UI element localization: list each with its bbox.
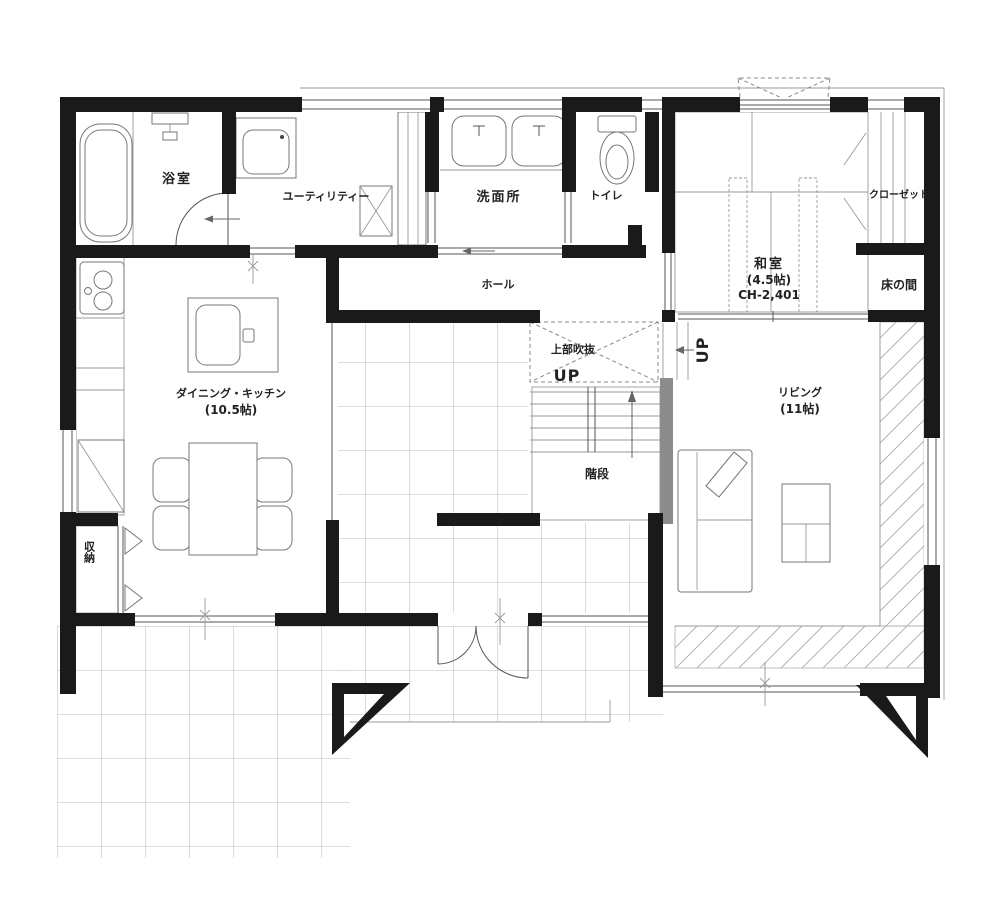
folding-door-icon [125, 585, 142, 611]
veranda-strip-bottom [675, 626, 924, 668]
tokonoma-label: 床の間 [881, 277, 917, 292]
storage-label: 収納 [83, 541, 96, 564]
chair-icon [254, 506, 292, 550]
entrance-porch-floor [338, 626, 663, 722]
japanese-room-label: 和室 [754, 256, 784, 272]
living-furniture [675, 322, 880, 626]
living-size: (11帖) [780, 401, 820, 416]
bathroom-door [176, 193, 240, 245]
sliding-door-washroom-side [428, 192, 435, 243]
chair-icon [153, 506, 191, 550]
window-toilet-top [642, 97, 664, 112]
window-living-right [924, 438, 940, 565]
window-japanese-room-top [740, 97, 830, 112]
chair-icon [254, 458, 292, 502]
dining-table-icon [189, 443, 257, 555]
japanese-room-size: (4.5帖) [747, 272, 791, 287]
washroom-label: 洗面所 [476, 189, 521, 205]
closet-label: クローゼット [869, 188, 929, 201]
void-label: 上部吹抜 [551, 342, 596, 356]
terrace-floor [57, 626, 350, 858]
sliding-door-kitchen-utility [248, 248, 295, 284]
living-label: リビング [778, 385, 822, 399]
toilet-icon [598, 116, 636, 184]
window-washroom-top [444, 97, 562, 112]
bathroom-label: 浴室 [162, 171, 192, 187]
stairs-label: 階段 [585, 466, 610, 481]
open-door-leaf [844, 198, 866, 230]
window-kitchen-left [60, 430, 76, 512]
up-arrow-icon [675, 346, 694, 354]
sliding-door-washroom-hall [438, 248, 562, 255]
window-closet-top [868, 97, 904, 112]
kitchen-island [188, 298, 278, 372]
floor-plan-page: 浴室 ユーティリティー 洗面所 トイレ ホール 和室 (4.5帖) CH-2,4… [0, 0, 1000, 900]
bathtub-icon [80, 124, 132, 242]
stairs-up-label: UP [554, 366, 581, 385]
low-table-icon [782, 484, 830, 562]
floor-plan: 浴室 ユーティリティー 洗面所 トイレ ホール 和室 (4.5帖) CH-2,4… [0, 0, 1000, 900]
washing-machine-icon [236, 118, 296, 178]
window-utility-top [302, 97, 430, 112]
folding-door-icon [125, 528, 142, 554]
stair-side-wall [660, 378, 673, 524]
utility-label: ユーティリティー [283, 190, 370, 203]
dining-kitchen-size: (10.5帖) [205, 402, 258, 417]
sofa-icon [678, 450, 752, 592]
sliding-door-hall-japanese [665, 253, 671, 310]
window-hall-bottom [542, 616, 648, 622]
dining-set [153, 443, 292, 555]
faucet-icon [152, 113, 188, 140]
open-door-leaf [844, 133, 866, 165]
kitchen-fixtures [76, 262, 292, 555]
sliding-door-toilet [565, 192, 571, 243]
veranda-strip-right [880, 322, 924, 626]
storage-closet [76, 526, 142, 613]
hall-label: ホール [482, 278, 515, 291]
sliding-door-japanese-living [678, 311, 868, 322]
living-step [663, 322, 694, 380]
washroom-fixtures [440, 116, 572, 170]
refrigerator-icon [78, 440, 124, 512]
sink-icon [512, 116, 566, 166]
chair-icon [153, 458, 191, 502]
toilet-label: トイレ [590, 189, 623, 202]
futon-closet-outline [799, 178, 817, 312]
sink-icon [452, 116, 506, 166]
utility-fixtures [236, 112, 426, 245]
stove-icon [80, 262, 124, 314]
utility-cabinet [398, 112, 426, 245]
step-up-label: UP [693, 337, 712, 364]
dining-kitchen-label: ダイニング・キッチン [176, 386, 286, 400]
bay-window-icon [738, 78, 830, 99]
japanese-room-ceiling: CH-2,401 [738, 288, 800, 302]
